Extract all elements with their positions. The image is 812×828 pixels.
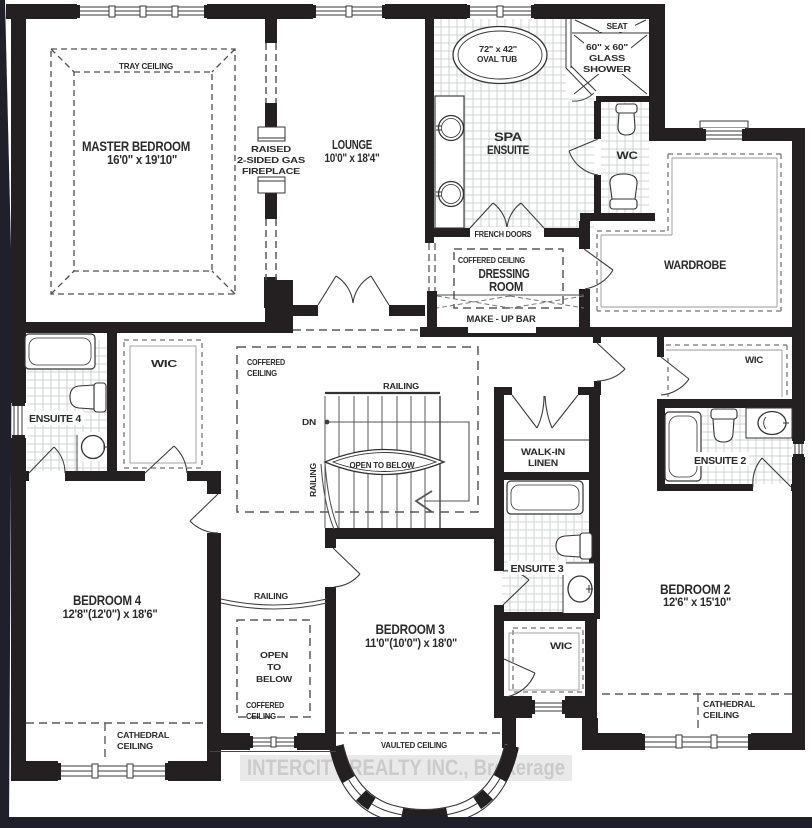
svg-text:12'8"(12'0") x 18'6": 12'8"(12'0") x 18'6": [63, 607, 158, 621]
svg-text:COFFERED: COFFERED: [246, 700, 284, 710]
svg-text:CEILING: CEILING: [247, 368, 278, 378]
svg-text:CEILING: CEILING: [246, 711, 277, 721]
svg-text:16'0" x 19'10": 16'0" x 19'10": [107, 153, 177, 167]
svg-text:SHOWER: SHOWER: [583, 64, 631, 74]
svg-text:FRENCH DOORS: FRENCH DOORS: [475, 230, 533, 239]
svg-text:SEAT: SEAT: [607, 21, 629, 31]
svg-text:ENSUITE 3: ENSUITE 3: [511, 564, 565, 575]
svg-text:BEDROOM 3: BEDROOM 3: [376, 621, 445, 637]
svg-text:72" x 42": 72" x 42": [479, 44, 517, 54]
svg-text:CEILING: CEILING: [117, 741, 154, 751]
svg-text:LINEN: LINEN: [528, 458, 558, 469]
svg-text:10'0" x 18'4": 10'0" x 18'4": [325, 153, 380, 165]
svg-text:DN: DN: [302, 417, 316, 427]
svg-text:WC: WC: [617, 150, 638, 162]
svg-text:OPEN: OPEN: [260, 650, 288, 660]
svg-text:RAISED: RAISED: [251, 144, 291, 154]
svg-text:BELOW: BELOW: [256, 674, 293, 684]
svg-text:VAULTED CEILING: VAULTED CEILING: [381, 740, 448, 750]
svg-text:WIC: WIC: [151, 358, 178, 370]
svg-text:TRAY CEILING: TRAY CEILING: [119, 61, 174, 71]
svg-text:RAILING: RAILING: [254, 592, 288, 601]
svg-text:COFFERED CEILING: COFFERED CEILING: [458, 256, 525, 265]
svg-text:60" x 60": 60" x 60": [586, 42, 628, 52]
svg-text:CATHEDRAL: CATHEDRAL: [703, 699, 755, 709]
svg-text:LOUNGE: LOUNGE: [332, 137, 372, 152]
svg-text:OPEN TO BELOW: OPEN TO BELOW: [350, 460, 416, 470]
svg-text:ENSUITE: ENSUITE: [487, 145, 530, 157]
svg-text:ENSUITE 4: ENSUITE 4: [29, 414, 82, 425]
svg-text:MASTER BEDROOM: MASTER BEDROOM: [82, 138, 190, 154]
svg-text:OVAL TUB: OVAL TUB: [477, 54, 517, 64]
svg-text:12'6" x 15'10": 12'6" x 15'10": [663, 595, 731, 609]
svg-text:GLASS: GLASS: [589, 53, 626, 63]
svg-text:BEDROOM 4: BEDROOM 4: [73, 592, 141, 608]
svg-text:WIC: WIC: [550, 641, 573, 652]
svg-text:ENSUITE 2: ENSUITE 2: [694, 456, 747, 467]
svg-text:SPA: SPA: [494, 132, 522, 144]
svg-text:TO: TO: [267, 662, 282, 672]
svg-text:WALK-IN: WALK-IN: [521, 447, 565, 458]
svg-text:2-SIDED GAS: 2-SIDED GAS: [237, 155, 306, 165]
svg-text:ROOM: ROOM: [489, 280, 523, 294]
svg-text:RAILING: RAILING: [309, 463, 318, 497]
svg-text:RAILING: RAILING: [383, 382, 419, 391]
svg-text:COFFERED: COFFERED: [247, 357, 285, 367]
svg-text:CATHEDRAL: CATHEDRAL: [117, 730, 169, 740]
svg-text:MAKE - UP BAR: MAKE - UP BAR: [467, 314, 536, 325]
svg-text:FIREPLACE: FIREPLACE: [242, 166, 301, 176]
svg-text:CEILING: CEILING: [703, 710, 740, 720]
svg-text:WIC: WIC: [745, 355, 763, 366]
svg-text:11'0"(10'0") x 18'0": 11'0"(10'0") x 18'0": [365, 636, 457, 650]
svg-text:DRESSING: DRESSING: [479, 267, 530, 281]
svg-text:INTERCITY REALTY INC., Brokera: INTERCITY REALTY INC., Brokerage: [247, 755, 565, 780]
svg-text:WARDROBE: WARDROBE: [664, 258, 726, 272]
